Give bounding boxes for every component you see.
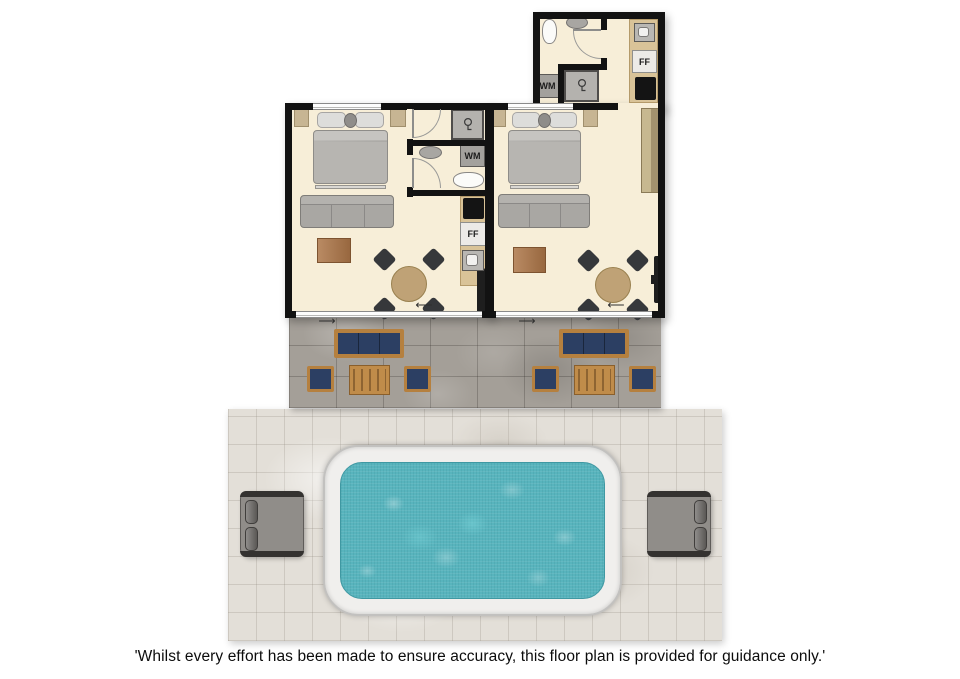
basin <box>419 146 442 159</box>
floorplan-canvas: ⟶ ⟶ ⟵ FF <box>0 0 960 679</box>
window <box>313 103 381 110</box>
swimming-pool <box>323 445 622 616</box>
washing-machine-label: WM <box>465 151 481 161</box>
outdoor-armchair <box>404 366 431 392</box>
lounger-pillow <box>245 500 258 524</box>
duvet <box>313 130 388 184</box>
outdoor-sofa <box>559 329 629 358</box>
shower-head-icon <box>575 78 589 94</box>
kitchen-sink <box>634 23 655 42</box>
door-opening <box>601 30 607 58</box>
duvet <box>508 130 581 184</box>
dining-chair <box>372 247 396 271</box>
exterior-wall <box>658 12 665 110</box>
dining-chair <box>576 248 600 272</box>
door-leaf <box>412 158 414 188</box>
sun-lounger-left <box>240 491 304 557</box>
door-leaf <box>412 109 414 138</box>
bed-foot <box>510 185 579 189</box>
lounger-pillow <box>245 527 258 551</box>
window <box>508 103 573 110</box>
bedside-table <box>583 109 598 127</box>
dining-chair <box>625 248 649 272</box>
exterior-wall <box>285 103 292 318</box>
fridge-freezer-label: FF <box>468 229 479 239</box>
shower <box>451 109 484 140</box>
lounger-pillow <box>694 527 707 551</box>
outdoor-sofa <box>334 329 404 358</box>
coffee-table <box>317 238 351 263</box>
lounger-pillow <box>694 500 707 524</box>
kitchen-sink <box>462 250 484 271</box>
coffee-table <box>513 247 546 273</box>
cushion <box>344 113 357 128</box>
fridge-freezer: FF <box>460 222 486 246</box>
entry-arrow-icon: ⟵ <box>598 300 634 310</box>
exterior-wall <box>658 103 665 318</box>
entry-arrow-icon: ⟵ <box>406 300 442 310</box>
bathroom-wall <box>413 140 492 146</box>
washing-machine-label: WM <box>540 81 556 91</box>
exterior-wall <box>533 12 665 19</box>
fridge-freezer-label: FF <box>639 57 650 67</box>
bathroom-wall <box>558 64 607 70</box>
toilet <box>542 19 557 44</box>
bedside-table <box>294 109 309 127</box>
dining-table <box>391 266 427 302</box>
cushion <box>538 113 551 128</box>
outdoor-armchair <box>629 366 656 392</box>
bedside-table <box>390 109 406 127</box>
party-wall <box>485 103 494 318</box>
pillow <box>317 112 346 128</box>
shower <box>564 70 599 102</box>
fridge-freezer: FF <box>632 50 657 73</box>
sliding-patio-door <box>296 311 482 318</box>
hob <box>463 198 484 219</box>
hob <box>635 77 656 100</box>
disclaimer-text: 'Whilst every effort has been made to en… <box>0 648 960 666</box>
sun-lounger-right <box>647 491 711 557</box>
bed-foot <box>315 185 386 189</box>
outdoor-table <box>574 365 615 395</box>
outdoor-armchair <box>307 366 334 392</box>
double-bed <box>313 106 388 190</box>
dining-chair <box>421 247 445 271</box>
pillow <box>512 112 540 128</box>
washing-machine: WM <box>460 145 485 167</box>
outdoor-table <box>349 365 390 395</box>
sliding-patio-door <box>496 311 652 318</box>
shower-head-icon <box>461 117 475 133</box>
sofa <box>300 195 394 228</box>
wall-tv <box>477 268 485 313</box>
pillow <box>355 112 384 128</box>
bathroom-wall <box>407 190 492 196</box>
bathroom-wall <box>558 70 564 103</box>
door-leaf <box>573 29 601 31</box>
double-bed <box>508 106 581 190</box>
pillow <box>549 112 577 128</box>
toilet <box>453 172 484 188</box>
pool-water <box>340 462 605 599</box>
sofa <box>498 194 590 228</box>
outdoor-armchair <box>532 366 559 392</box>
exterior-wall <box>533 12 540 110</box>
